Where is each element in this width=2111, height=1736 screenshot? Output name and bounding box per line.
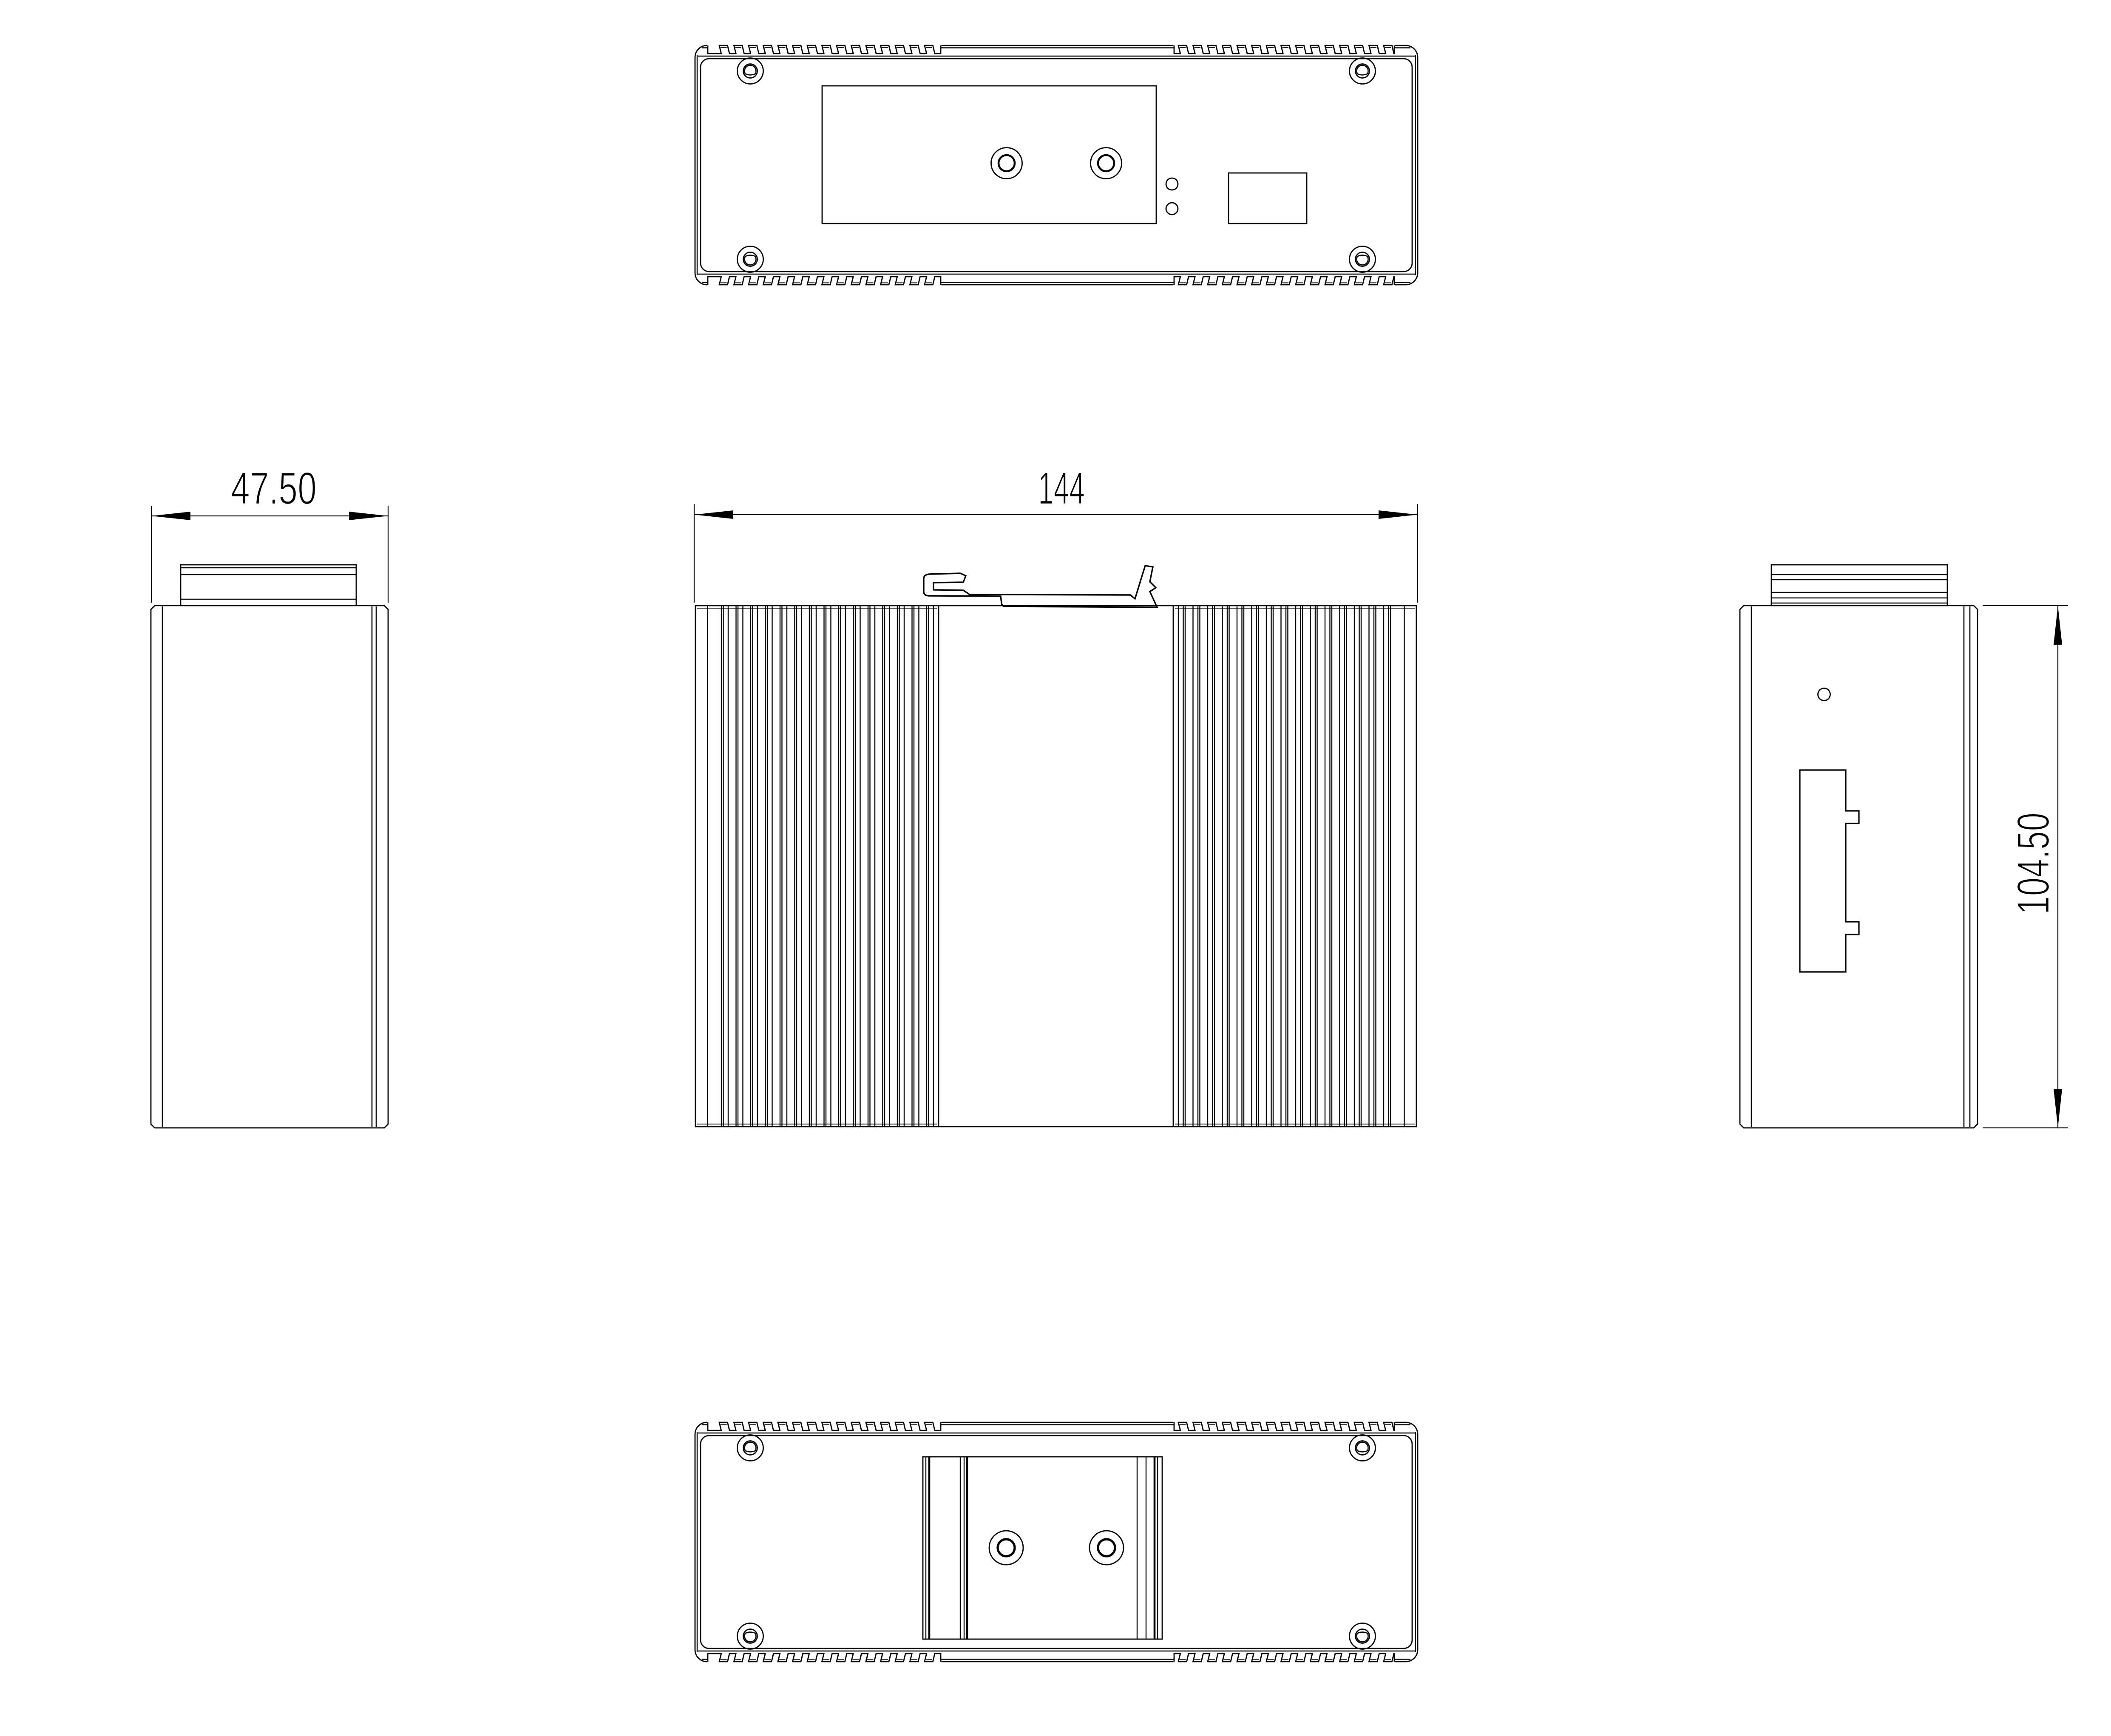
svg-text:104.50: 104.50: [2007, 813, 2059, 915]
svg-text:144: 144: [1038, 462, 1085, 514]
svg-text:47.50: 47.50: [231, 462, 317, 514]
